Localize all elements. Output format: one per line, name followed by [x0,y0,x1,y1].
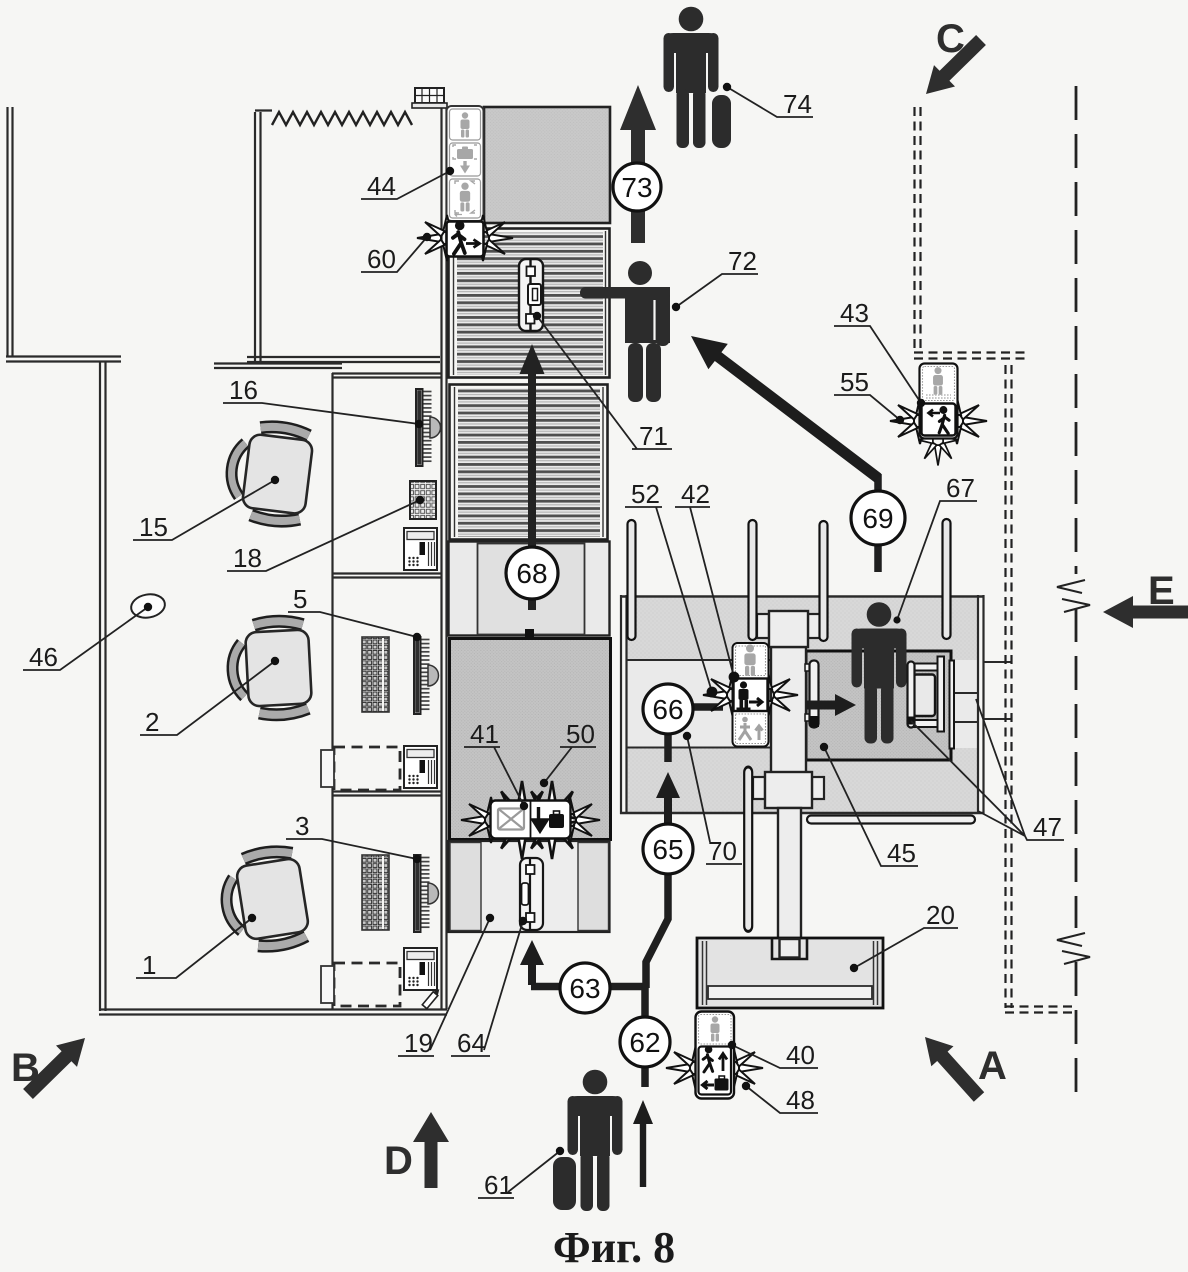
svg-text:74: 74 [783,89,812,119]
svg-text:40: 40 [786,1040,815,1070]
svg-text:3: 3 [295,811,309,841]
svg-text:63: 63 [569,973,600,1004]
svg-text:45: 45 [887,838,916,868]
svg-text:48: 48 [786,1085,815,1115]
svg-text:B: B [11,1046,40,1090]
svg-text:71: 71 [639,421,668,451]
svg-text:52: 52 [631,479,660,509]
svg-text:70: 70 [708,836,737,866]
svg-text:43: 43 [840,298,869,328]
svg-text:42: 42 [681,479,710,509]
svg-text:64: 64 [457,1028,486,1058]
svg-text:62: 62 [629,1027,660,1058]
svg-text:18: 18 [233,543,262,573]
svg-text:A: A [978,1044,1007,1088]
svg-text:72: 72 [728,246,757,276]
svg-text:1: 1 [142,950,156,980]
svg-text:46: 46 [29,642,58,672]
svg-text:47: 47 [1033,812,1062,842]
svg-text:D: D [384,1139,413,1183]
svg-text:19: 19 [404,1028,433,1058]
svg-text:41: 41 [470,719,499,749]
svg-text:73: 73 [621,172,652,203]
svg-text:2: 2 [145,707,159,737]
svg-text:65: 65 [652,834,683,865]
svg-text:15: 15 [139,512,168,542]
svg-text:55: 55 [840,367,869,397]
svg-text:Фиг. 8: Фиг. 8 [553,1223,675,1272]
svg-text:44: 44 [367,171,396,201]
svg-text:60: 60 [367,244,396,274]
svg-text:67: 67 [946,473,975,503]
svg-text:5: 5 [293,584,307,614]
svg-text:50: 50 [566,719,595,749]
svg-text:69: 69 [862,503,893,534]
svg-text:C: C [936,17,965,61]
svg-text:61: 61 [484,1170,513,1200]
svg-text:E: E [1148,569,1175,613]
svg-text:20: 20 [926,900,955,930]
svg-text:66: 66 [652,694,683,725]
svg-text:68: 68 [516,558,547,589]
svg-text:16: 16 [229,375,258,405]
